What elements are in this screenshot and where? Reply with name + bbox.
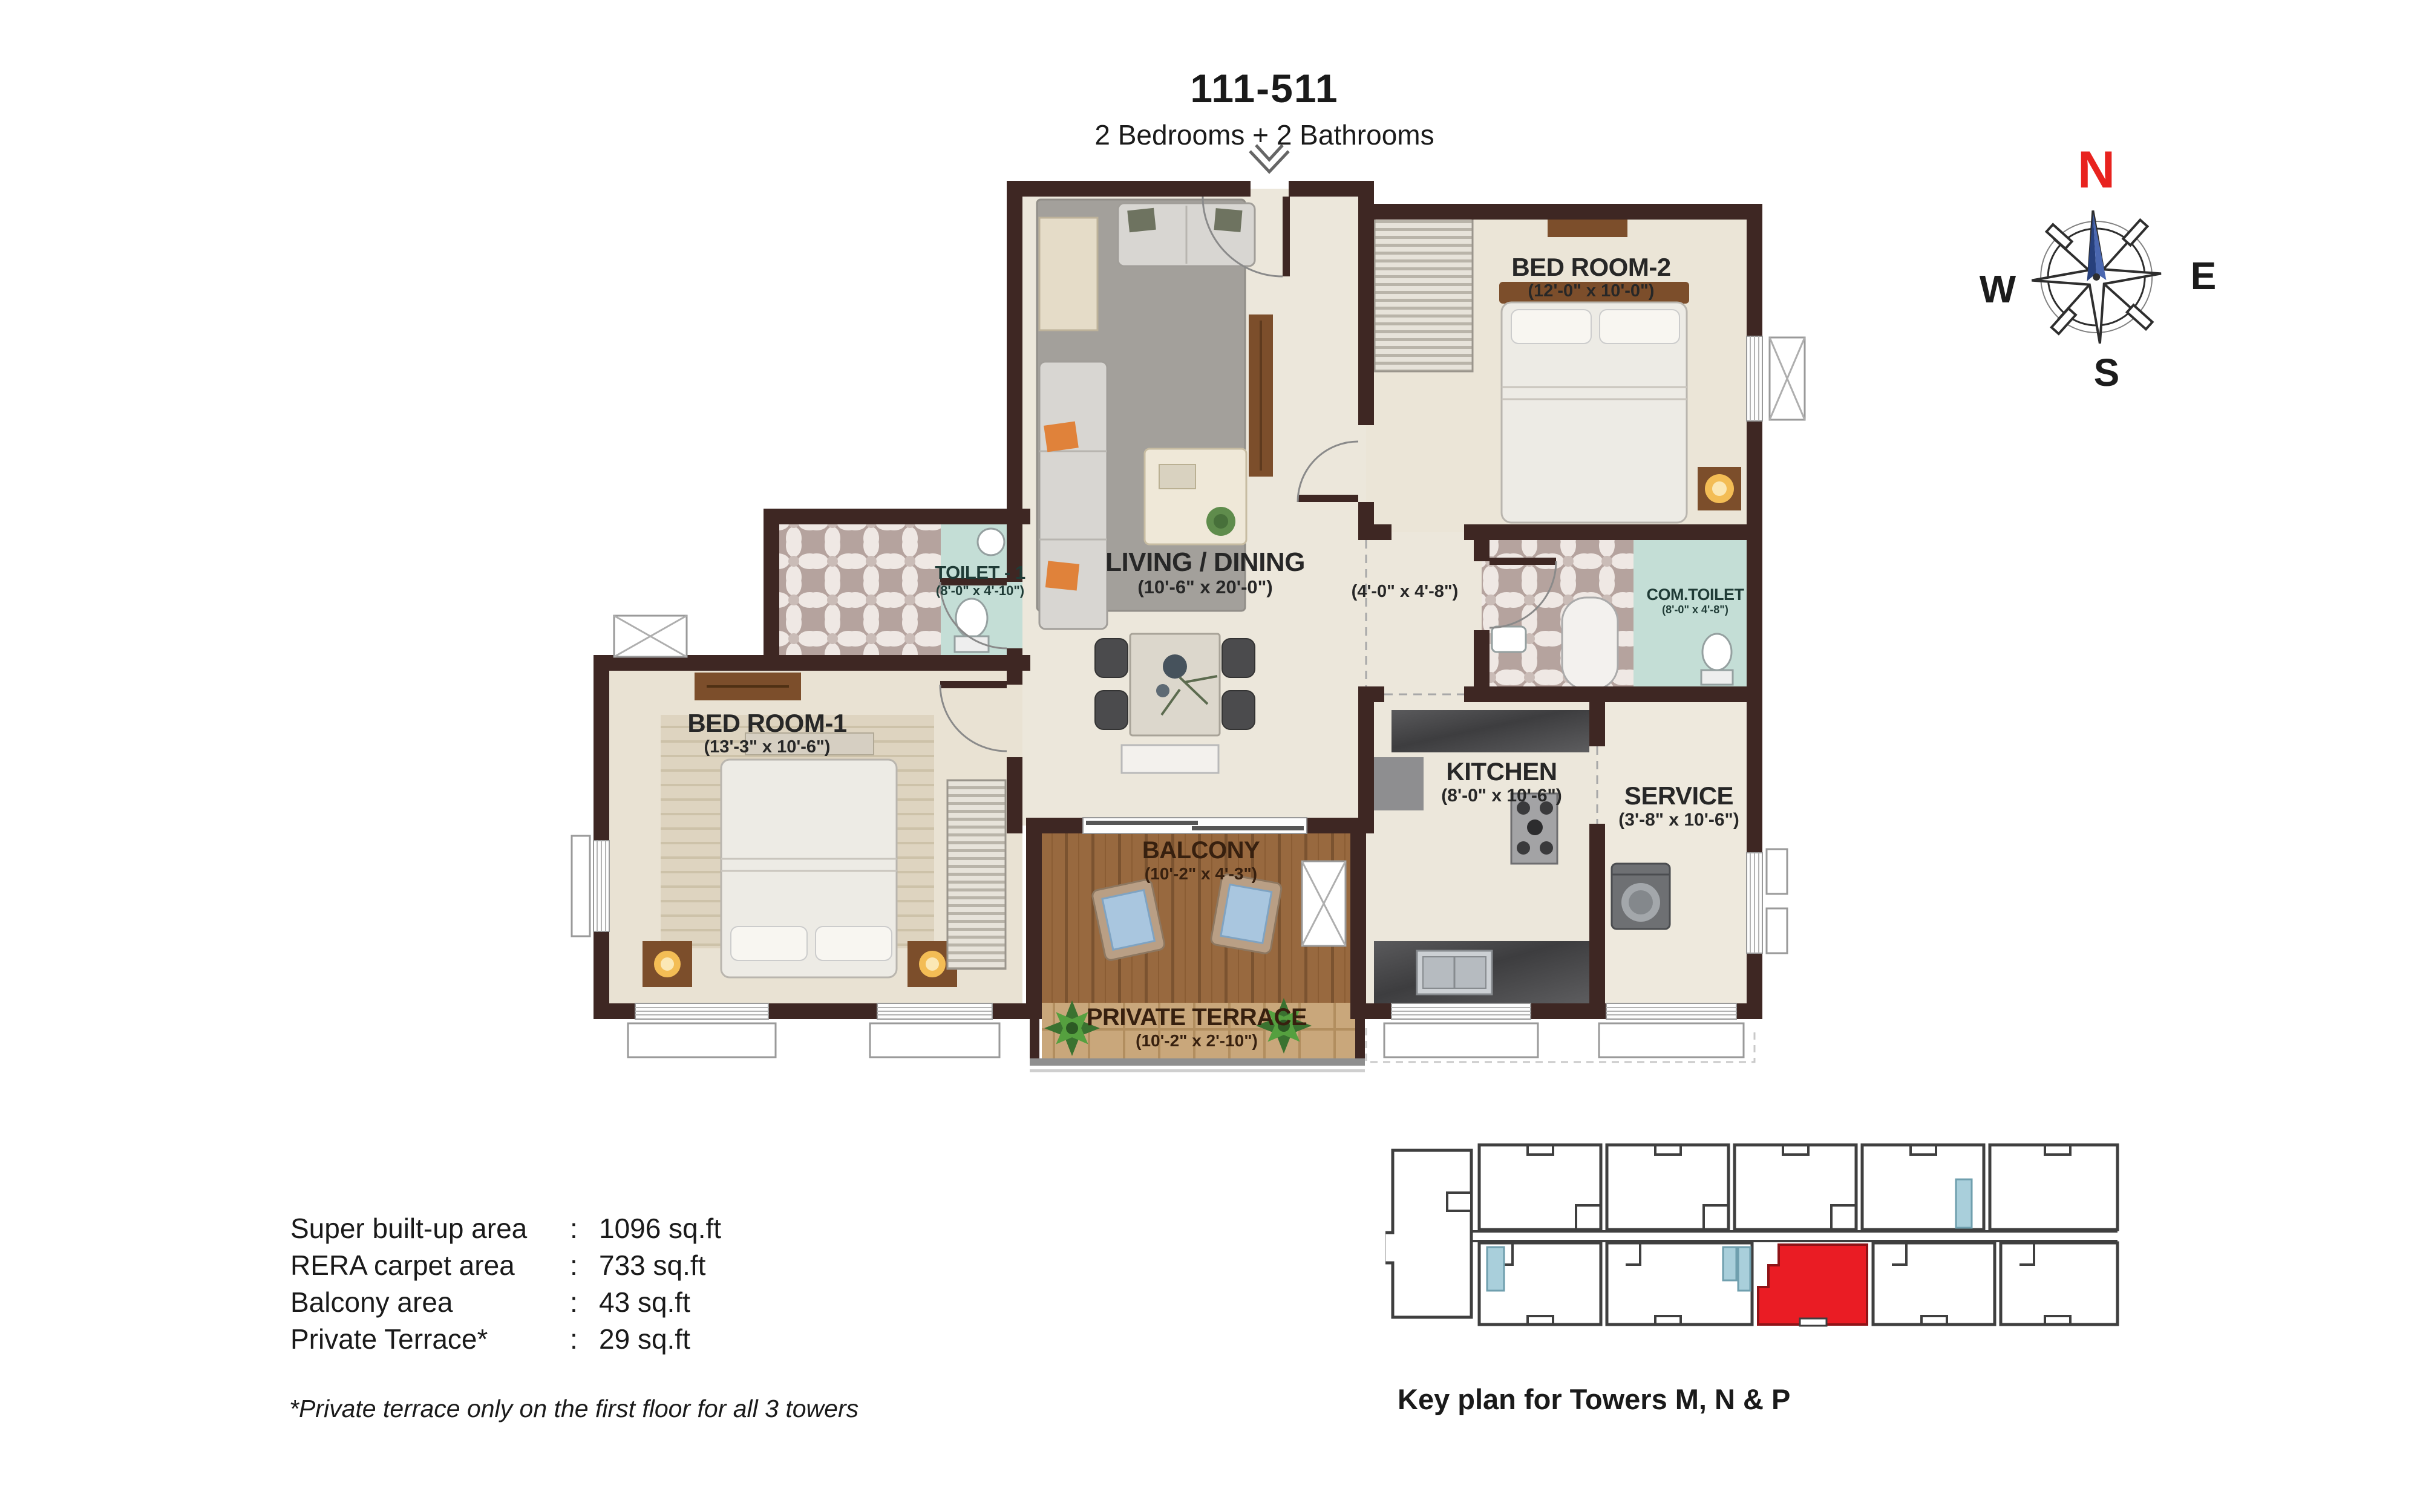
- side-table: [1039, 218, 1097, 330]
- kitchen-counter-top: [1391, 710, 1589, 752]
- page-title-unit-number: 111-511: [1190, 65, 1338, 111]
- dining-chair: [1222, 691, 1255, 729]
- label-passage-dims: (4'-0" x 4'-8"): [1352, 582, 1459, 601]
- balcony-sliding-door: [1083, 818, 1307, 833]
- wc: [1702, 634, 1732, 670]
- key-plan-units: [1385, 1145, 2117, 1325]
- key-plan-caption: Key plan for Towers M, N & P: [1398, 1383, 1790, 1416]
- label-bedroom2: BED ROOM-2 (12'-0" x 10'-0"): [1511, 253, 1670, 301]
- passage-floor: [1366, 532, 1482, 694]
- area-label: Private Terrace*: [290, 1323, 570, 1355]
- compass-north-label: N: [2078, 141, 2115, 199]
- label-service: SERVICE (3'-8" x 10'-6"): [1618, 781, 1739, 830]
- compass-star: [2029, 207, 2165, 347]
- label-kitchen: KITCHEN (8'-0" x 10'-6"): [1441, 757, 1562, 806]
- area-table: Super built-up area : 1096 sq.ft RERA ca…: [290, 1210, 721, 1357]
- orange-pillow: [1045, 561, 1079, 590]
- compass-south-label: S: [2094, 351, 2120, 394]
- pillow: [731, 927, 807, 960]
- compass-rose-icon: N W E S: [1966, 121, 2232, 399]
- terrace-parapet: [1030, 1058, 1365, 1066]
- washbasin: [978, 529, 1004, 555]
- orange-pillow: [1044, 422, 1079, 452]
- area-row-balcony: Balcony area : 43 sq.ft: [290, 1283, 721, 1320]
- area-label: Balcony area: [290, 1286, 570, 1318]
- kitchen-fridge: [1374, 757, 1424, 810]
- area-label: RERA carpet area: [290, 1249, 570, 1282]
- entry-door-leaf: [1283, 197, 1290, 276]
- shower: [1562, 598, 1618, 689]
- label-com-toilet: COM.TOILET (8'-0" x 4'-8"): [1647, 585, 1744, 616]
- bedroom1-wardrobe: [947, 780, 1006, 969]
- area-separator: :: [570, 1249, 599, 1282]
- bedroom2-door-leaf: [1298, 495, 1358, 502]
- area-separator: :: [570, 1212, 599, 1245]
- area-label: Super built-up area: [290, 1212, 570, 1245]
- pillow: [1600, 310, 1679, 344]
- dining-chair: [1095, 639, 1128, 677]
- pillow: [1511, 310, 1591, 344]
- area-row-super-built-up: Super built-up area : 1096 sq.ft: [290, 1210, 721, 1246]
- washbasin: [1492, 627, 1526, 652]
- area-value: 43 sq.ft: [599, 1286, 690, 1318]
- key-plan-unit: [1873, 1243, 1995, 1325]
- com-toilet-door-leaf: [1490, 558, 1556, 565]
- area-separator: :: [570, 1286, 599, 1318]
- area-separator: :: [570, 1323, 599, 1355]
- key-plan-unit: [1479, 1145, 1601, 1230]
- dining-chair: [1095, 691, 1128, 729]
- key-plan-highlighted-unit: [1758, 1245, 1867, 1325]
- terrace-footnote: *Private terrace only on the first floor…: [289, 1395, 858, 1423]
- key-plan-unit: [2001, 1243, 2117, 1325]
- compass-east-label: E: [2191, 254, 2217, 298]
- pillow: [816, 927, 892, 960]
- area-row-private-terrace: Private Terrace* : 29 sq.ft: [290, 1320, 721, 1357]
- wc: [956, 599, 987, 637]
- label-toilet1: TOILET - 1 (8'-0" x 4'-10"): [935, 562, 1025, 598]
- label-living-dining: LIVING / DINING (10'-6" x 20'-0"): [1105, 547, 1305, 598]
- compass-west-label: W: [1980, 267, 2016, 311]
- bedroom2-wardrobe: [1375, 217, 1473, 371]
- area-value: 733 sq.ft: [599, 1249, 705, 1282]
- label-balcony: BALCONY (10'-2" x 4'-3"): [1142, 837, 1260, 883]
- area-value: 29 sq.ft: [599, 1323, 690, 1355]
- label-bedroom1: BED ROOM-1 (13'-3" x 10'-6"): [687, 709, 846, 757]
- service-fixtures: [1612, 864, 1670, 929]
- key-plan-unit: [1607, 1145, 1728, 1230]
- entry-arrow-icon: [1250, 145, 1289, 172]
- key-plan-unit: [1990, 1145, 2117, 1230]
- dining-console: [1122, 745, 1218, 773]
- key-plan-unit: [1385, 1150, 1471, 1317]
- label-private-terrace: PRIVATE TERRACE (10'-2" x 2'-10"): [1087, 1004, 1307, 1050]
- key-plan-unit: [1735, 1145, 1856, 1230]
- area-value: 1096 sq.ft: [599, 1212, 721, 1245]
- toilet1-mosaic-floor: [771, 516, 941, 663]
- dining-chair: [1222, 639, 1255, 677]
- area-row-rera-carpet: RERA carpet area : 733 sq.ft: [290, 1246, 721, 1283]
- dining-table: [1130, 634, 1220, 735]
- key-plan-drawing: [1385, 1128, 2172, 1370]
- service-floor: [1597, 694, 1754, 1011]
- bedroom1-door-leaf: [940, 681, 1007, 688]
